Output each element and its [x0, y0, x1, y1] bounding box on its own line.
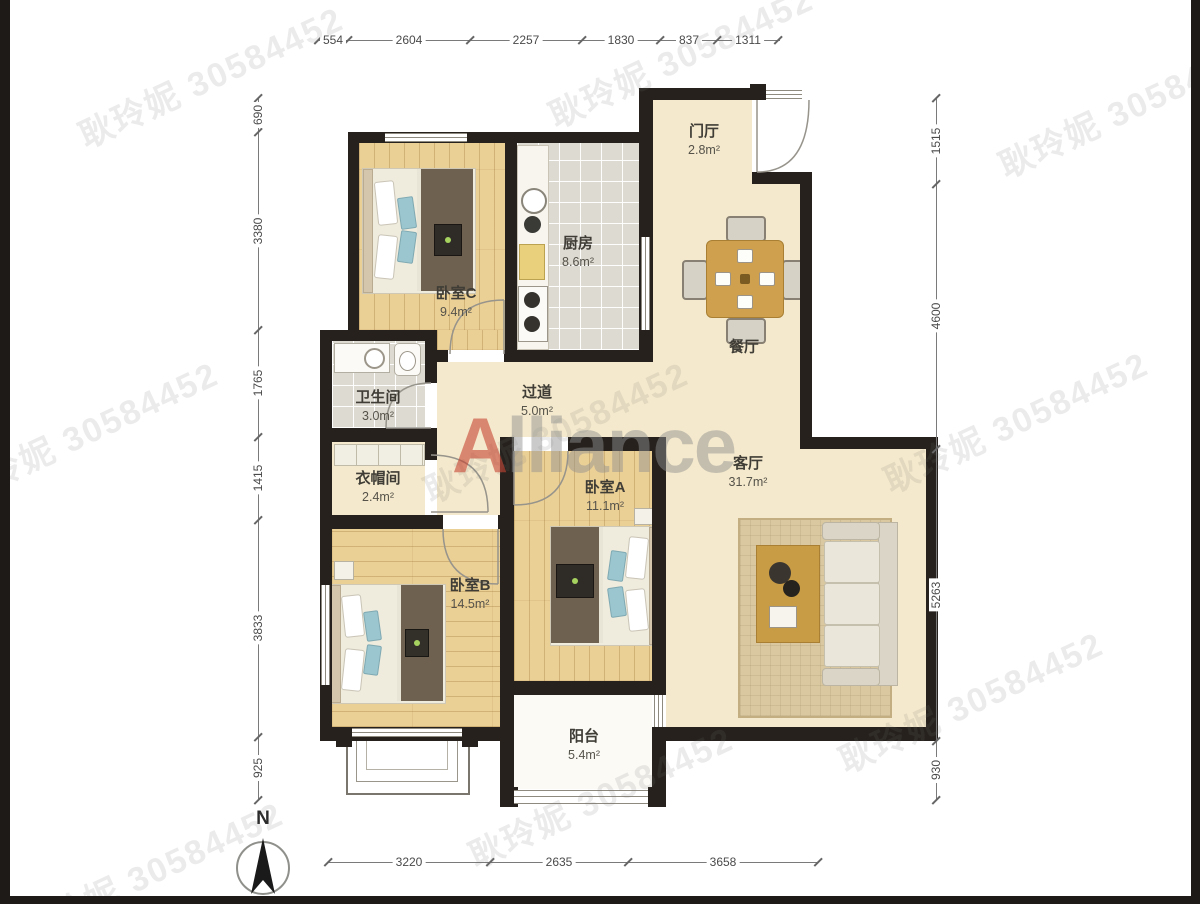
dim-value: 837 — [676, 33, 702, 47]
room-label-balcony: 阳台 5.4m² — [568, 727, 600, 763]
sofa-armrest — [822, 668, 880, 686]
wall — [505, 132, 517, 362]
room-label-bedroomC: 卧室C 9.4m² — [436, 284, 477, 320]
room-name: 卧室B — [450, 576, 491, 596]
room-area: 5.0m² — [521, 403, 553, 419]
toilet-bowl — [399, 351, 416, 371]
tv-bedroomC — [434, 224, 462, 256]
tv-led — [445, 237, 451, 243]
dim-value: 2604 — [393, 33, 426, 47]
room-area: 5.4m² — [568, 747, 600, 763]
dim-value: 3658 — [707, 855, 740, 869]
room-label-kitchen: 厨房 8.6m² — [562, 234, 594, 270]
room-label-entry: 门厅 2.8m² — [688, 122, 720, 158]
sliding-door-kitchen — [641, 237, 650, 330]
plate — [715, 272, 731, 286]
sofa-back — [878, 522, 898, 686]
nightstand — [634, 508, 654, 525]
floor-hall-ext — [437, 437, 506, 515]
dim-value: 3833 — [251, 612, 265, 645]
balcony-passage — [654, 695, 663, 727]
bay-window-frame — [366, 741, 448, 770]
stove-burner — [524, 316, 540, 332]
wall-post — [462, 727, 478, 747]
window-bedroomC — [385, 133, 467, 142]
room-name: 厨房 — [562, 234, 594, 254]
room-label-bathroom: 卫生间 3.0m² — [355, 388, 400, 424]
room-name: 餐厅 — [729, 337, 759, 357]
watermark: 耿玲妮 30584452 — [0, 347, 225, 513]
cushion — [397, 230, 417, 264]
compass-north-label: N — [256, 808, 270, 830]
compass: N — [228, 808, 298, 900]
window-balcony — [514, 790, 648, 804]
dimension-line-top: 554 2604 2257 1830 837 1311 — [318, 36, 780, 45]
bed-headboard — [363, 169, 373, 293]
cushion — [607, 550, 627, 582]
dim-value: 3220 — [393, 855, 426, 869]
floorplan-canvas: 耿玲妮 30584452 耿玲妮 30584452 耿玲妮 30584452 耿… — [0, 0, 1200, 904]
dimension-line-left: 690 3380 1765 1415 3833 925 — [252, 98, 265, 800]
table-centerpiece — [740, 274, 750, 284]
pillow — [341, 594, 365, 638]
dimension-line-bottom: 3220 2635 3658 — [328, 858, 818, 867]
dim-value: 5263 — [929, 579, 943, 612]
pillow — [625, 536, 649, 580]
wall-post — [336, 727, 352, 747]
bed-fold — [417, 169, 421, 291]
sofa-armrest — [822, 522, 880, 540]
wall — [652, 727, 938, 741]
door-opening-bedroomC — [448, 350, 504, 362]
sofa-cushion — [824, 583, 880, 625]
wall — [320, 330, 437, 341]
pillow — [374, 180, 398, 226]
wall — [752, 172, 812, 184]
laptop-led — [414, 640, 420, 646]
room-label-hallway: 过道 5.0m² — [521, 383, 553, 419]
room-area: 11.1m² — [585, 498, 626, 514]
door-opening-bathroom — [425, 383, 437, 428]
room-label-bedroomB: 卧室B 14.5m² — [450, 576, 491, 612]
wall — [800, 184, 812, 449]
tv-bedroomA — [556, 564, 594, 598]
frame-bar-left — [0, 0, 10, 904]
wall — [644, 88, 756, 100]
room-area: 3.0m² — [355, 408, 400, 424]
dining-chair — [726, 216, 766, 242]
sofa-cushion — [824, 541, 880, 583]
pillow — [374, 234, 398, 280]
room-label-bedroomA: 卧室A 11.1m² — [585, 478, 626, 514]
frame-bar-bottom — [0, 896, 1200, 904]
room-area: 31.7m² — [729, 474, 768, 490]
room-area: 14.5m² — [450, 596, 491, 612]
watermark: 耿玲妮 30584452 — [70, 0, 351, 158]
dim-line — [258, 98, 259, 800]
wall — [348, 132, 359, 341]
watermark: 耿玲妮 30584452 — [990, 22, 1200, 188]
cushion — [397, 196, 417, 230]
dim-value: 1830 — [605, 33, 638, 47]
plate — [737, 249, 753, 263]
wardrobe — [334, 444, 425, 466]
floor-hallway — [437, 362, 800, 437]
dim-value: 554 — [320, 33, 346, 47]
room-name: 衣帽间 — [355, 469, 400, 489]
room-label-living: 客厅 31.7m² — [729, 454, 768, 490]
room-area: 9.4m² — [436, 304, 477, 320]
room-area: 8.6m² — [562, 254, 594, 270]
dim-line — [318, 40, 780, 41]
dim-value: 925 — [251, 755, 265, 781]
dim-value: 4600 — [929, 300, 943, 333]
dim-value: 1765 — [251, 367, 265, 400]
plate — [759, 272, 775, 286]
kitchen-sink — [521, 188, 547, 214]
pillow — [625, 588, 649, 632]
room-name: 卫生间 — [355, 388, 400, 408]
nightstand — [334, 561, 354, 580]
laptop — [405, 629, 429, 657]
room-name: 卧室C — [436, 284, 477, 304]
dim-value: 930 — [929, 757, 943, 783]
pillow — [341, 648, 365, 692]
wall — [652, 437, 666, 695]
bed-fold — [397, 585, 401, 701]
window-entry — [766, 90, 802, 99]
cushion — [363, 644, 382, 676]
room-name: 门厅 — [688, 122, 720, 142]
dim-value: 3380 — [251, 215, 265, 248]
dim-value: 1311 — [732, 33, 764, 47]
door-opening-bedroomB — [443, 515, 498, 529]
table-decor — [783, 580, 800, 597]
bed-bedroomB — [330, 584, 446, 704]
bathroom-basin — [364, 348, 385, 369]
room-label-dining: 餐厅 — [729, 337, 759, 357]
floor-bedroomC-ext — [437, 330, 505, 350]
bed-fold — [599, 527, 603, 643]
tv-led — [572, 578, 578, 584]
window-bedroomB — [321, 585, 330, 685]
dining-chair — [682, 260, 708, 300]
room-label-cloakroom: 衣帽间 2.4m² — [355, 469, 400, 505]
cushion — [607, 586, 627, 618]
room-name: 阳台 — [568, 727, 600, 747]
kitchen-pot — [524, 216, 541, 233]
room-area: 2.8m² — [688, 142, 720, 158]
window-bedroomB-bay — [352, 728, 462, 737]
dim-value: 2635 — [543, 855, 576, 869]
dim-value: 2257 — [510, 33, 543, 47]
wall-post — [750, 84, 766, 100]
bed-headboard — [331, 585, 341, 703]
wall — [425, 442, 437, 460]
coffee-table — [756, 545, 820, 643]
dim-value: 690 — [251, 102, 265, 128]
stove-burner — [524, 292, 540, 308]
room-name: 客厅 — [729, 454, 768, 474]
cushion — [363, 610, 382, 642]
wall — [500, 681, 666, 695]
room-area: 2.4m² — [355, 489, 400, 505]
dimension-line-right: 1515 4600 5263 930 — [930, 98, 943, 800]
plate — [737, 295, 753, 309]
magazine — [769, 606, 797, 628]
door-opening-bedroomA — [514, 437, 568, 451]
room-name: 卧室A — [585, 478, 626, 498]
frame-bar-right — [1191, 0, 1200, 904]
room-name: 过道 — [521, 383, 553, 403]
wall-post — [648, 787, 666, 807]
sofa — [822, 522, 896, 684]
cutting-board — [519, 244, 545, 280]
wall — [500, 437, 514, 805]
dim-value: 1515 — [929, 125, 943, 158]
dim-value: 1415 — [251, 462, 265, 495]
dining-table — [706, 240, 784, 318]
wall — [812, 437, 938, 449]
sofa-cushion — [824, 625, 880, 667]
wall — [320, 428, 437, 442]
